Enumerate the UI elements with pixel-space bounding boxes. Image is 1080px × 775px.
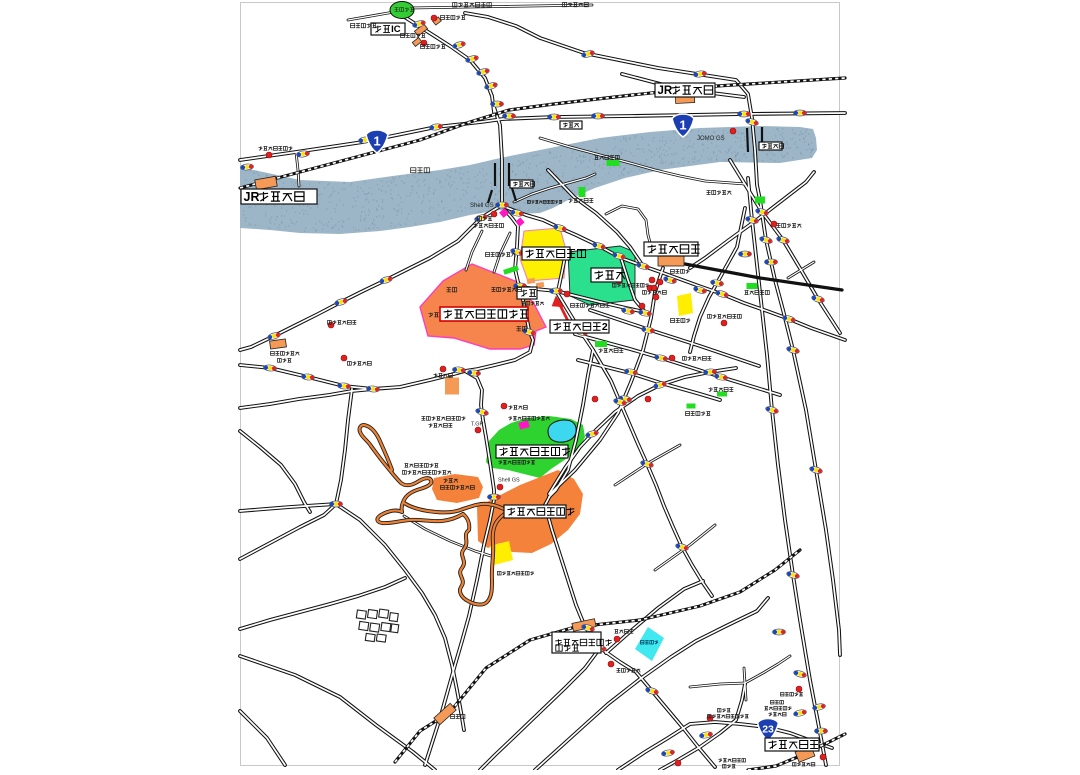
svg-text:T.GR: T.GR bbox=[471, 422, 484, 428]
svg-text:JR: JR bbox=[244, 190, 260, 204]
svg-text:JR: JR bbox=[658, 85, 673, 97]
svg-text:1: 1 bbox=[373, 134, 380, 149]
svg-text:IC: IC bbox=[391, 24, 401, 35]
svg-text:Shell GS: Shell GS bbox=[470, 203, 494, 209]
svg-text:2: 2 bbox=[602, 321, 608, 333]
svg-text:23: 23 bbox=[762, 724, 774, 735]
svg-text:1: 1 bbox=[679, 118, 686, 133]
svg-text:JOMO GS: JOMO GS bbox=[697, 136, 725, 142]
svg-text:Shell GS: Shell GS bbox=[498, 478, 520, 484]
